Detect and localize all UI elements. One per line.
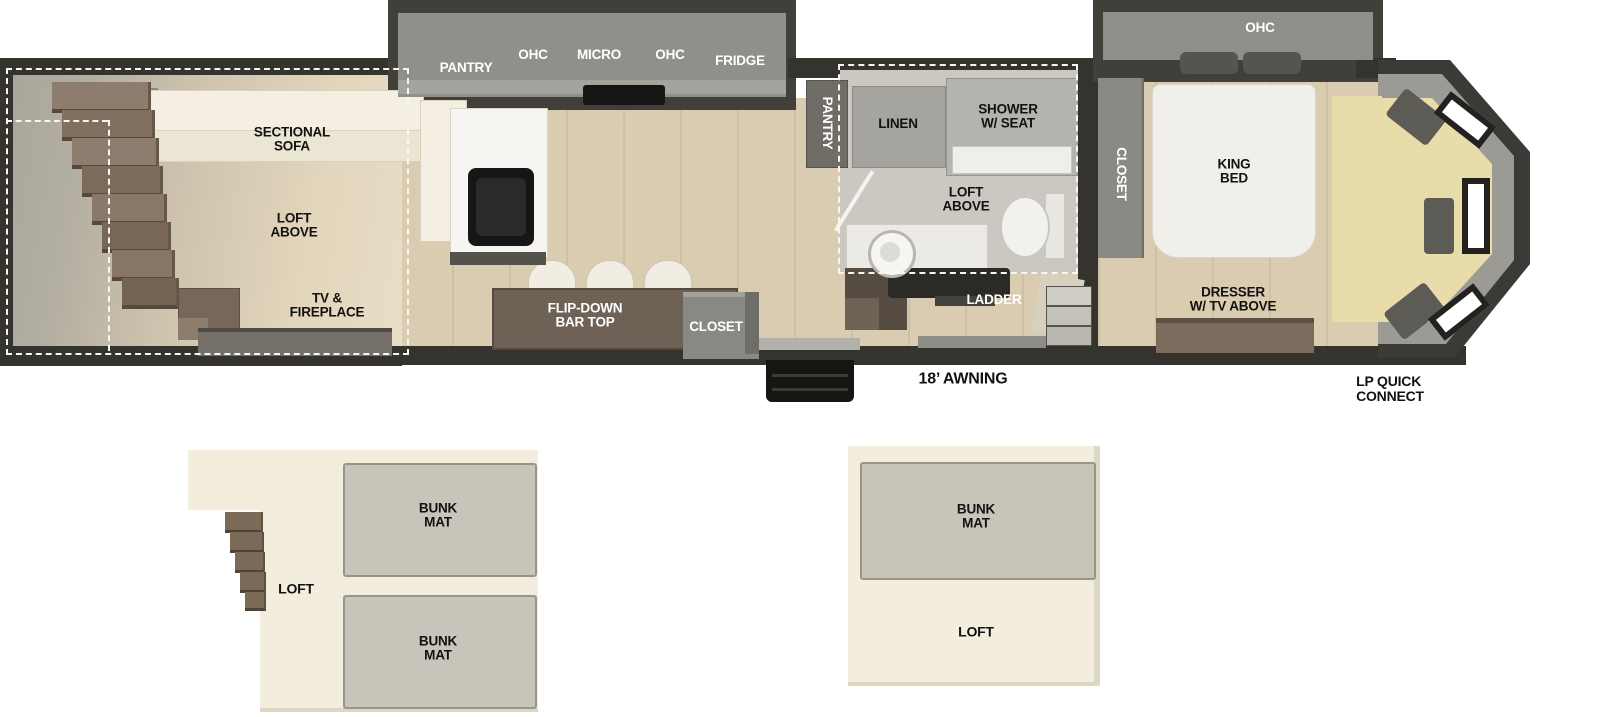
bed-pillow (1243, 52, 1301, 74)
tall-pantry-label: PANTRY (820, 97, 834, 150)
stairs-step (82, 166, 163, 197)
flip-down-bar-label: FLIP-DOWN BAR TOP (548, 302, 623, 331)
ladder-label: LADDER (966, 293, 1021, 307)
left-loft-bunk-top-label: BUNK MAT (419, 502, 457, 531)
left-loft-step (245, 592, 266, 611)
fridge-label: FRIDGE (715, 54, 765, 68)
entry-steps (766, 360, 854, 402)
tv-fireplace-label: TV & FIREPLACE (290, 292, 365, 321)
left-loft-step (235, 552, 265, 573)
stairs-step (122, 278, 179, 309)
floorplan-stage: SECTIONAL SOFA LOFT ABOVE TV & FIREPLACE… (0, 0, 1600, 717)
toilet-bowl (1000, 196, 1050, 258)
front-cap-desk-return (1332, 96, 1382, 322)
bedroom-ohc-label: OHC (1245, 21, 1274, 35)
sectional-sofa-label: SECTIONAL SOFA (254, 126, 330, 155)
stairs-step (52, 82, 151, 113)
stairs-step (72, 138, 159, 169)
rear-loft-above-label: LOFT ABOVE (270, 212, 317, 241)
fireplace-tv-unit (198, 328, 392, 356)
entry-closet-label: CLOSET (689, 320, 743, 334)
shower-label: SHOWER W/ SEAT (978, 103, 1038, 132)
bath-loft-above-label: LOFT ABOVE (942, 186, 989, 215)
bath-vanity (846, 224, 988, 274)
entry-step-tread (772, 388, 848, 391)
ramp-threshold (918, 336, 1046, 348)
shower-pan (952, 146, 1072, 174)
left-loft-step (240, 572, 266, 593)
cap-cushion (1424, 198, 1454, 254)
left-loft-step (230, 532, 264, 553)
bedroom-steps (1046, 306, 1092, 326)
entry-threshold (756, 338, 860, 350)
linen-label: LINEN (878, 117, 918, 131)
left-loft-label: LOFT (278, 582, 314, 597)
left-loft-bunk-bottom-label: BUNK MAT (419, 635, 457, 664)
stairs-step (62, 110, 155, 141)
dresser-label: DRESSER W/ TV ABOVE (1190, 286, 1277, 315)
bedroom-steps (1046, 286, 1092, 306)
lp-quick-connect-label: LP QUICK CONNECT (1356, 374, 1424, 404)
dresser (1156, 318, 1314, 353)
bedroom-ohc-cabinet (1103, 12, 1373, 60)
stairs-step (92, 194, 167, 225)
bedroom-closet-label: CLOSET (1114, 147, 1128, 201)
awning-label: 18’ AWNING (919, 370, 1008, 387)
bedroom-steps (1046, 326, 1092, 346)
kitchen-sink-basin (476, 178, 526, 236)
king-bed-label: KING BED (1218, 158, 1251, 187)
right-loft-label: LOFT (958, 625, 994, 640)
ohc-left-label: OHC (518, 48, 547, 62)
cooktop (583, 85, 665, 105)
kitchen-pantry-label: PANTRY (440, 61, 493, 75)
entry-step-tread (772, 374, 848, 377)
cap-window (1462, 178, 1490, 254)
bath-sink-basin (880, 242, 900, 262)
ohc-right-label: OHC (655, 48, 684, 62)
right-loft-bunk-label: BUNK MAT (957, 503, 995, 532)
stairs-step (102, 222, 171, 253)
corridor-cabinet-front (845, 298, 879, 330)
bed-pillow (1180, 52, 1238, 74)
stairs-step (112, 250, 175, 281)
island-base-shadow (450, 252, 546, 265)
micro-label: MICRO (577, 48, 621, 62)
left-loft-step (225, 512, 263, 533)
entry-closet-side (745, 292, 759, 354)
